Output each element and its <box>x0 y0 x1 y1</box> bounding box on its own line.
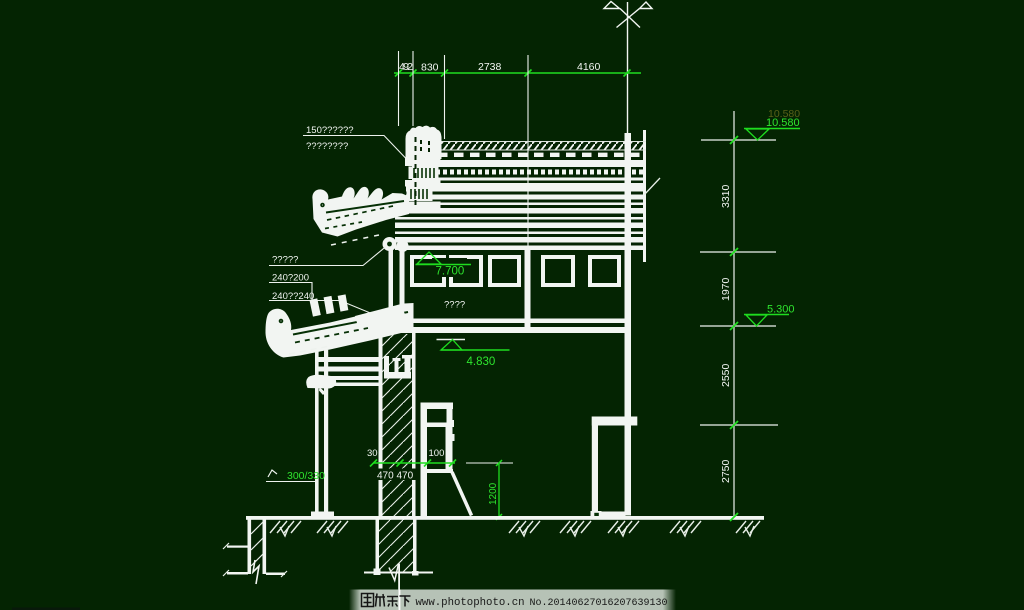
svg-text:30: 30 <box>367 448 378 459</box>
svg-text:2750: 2750 <box>720 459 732 483</box>
svg-text:7.700: 7.700 <box>436 266 465 278</box>
svg-text:????: ???? <box>444 300 465 311</box>
svg-text:No.20140627016207639130: No.20140627016207639130 <box>530 598 668 609</box>
svg-text:240?200: 240?200 <box>272 273 309 284</box>
svg-text:470 470: 470 470 <box>377 471 414 482</box>
svg-text:2738: 2738 <box>478 61 502 73</box>
svg-text:10.580: 10.580 <box>766 117 800 129</box>
svg-text:1970: 1970 <box>720 277 732 301</box>
svg-text:4160: 4160 <box>577 61 601 73</box>
svg-text:www.photophoto.cn: www.photophoto.cn <box>416 597 525 609</box>
svg-text:150??????: 150?????? <box>306 125 354 136</box>
svg-text:2550: 2550 <box>720 363 732 387</box>
svg-text:4.830: 4.830 <box>467 356 496 368</box>
svg-text:?????: ????? <box>272 255 298 266</box>
svg-text:492: 492 <box>399 61 413 73</box>
svg-text:5.300: 5.300 <box>767 304 795 316</box>
svg-text:????????: ???????? <box>306 141 348 152</box>
svg-text:3310: 3310 <box>720 184 732 208</box>
svg-text:100: 100 <box>429 448 445 459</box>
svg-text:300/330: 300/330 <box>287 470 325 482</box>
svg-text:1200: 1200 <box>488 482 499 505</box>
svg-text:830: 830 <box>421 62 439 74</box>
